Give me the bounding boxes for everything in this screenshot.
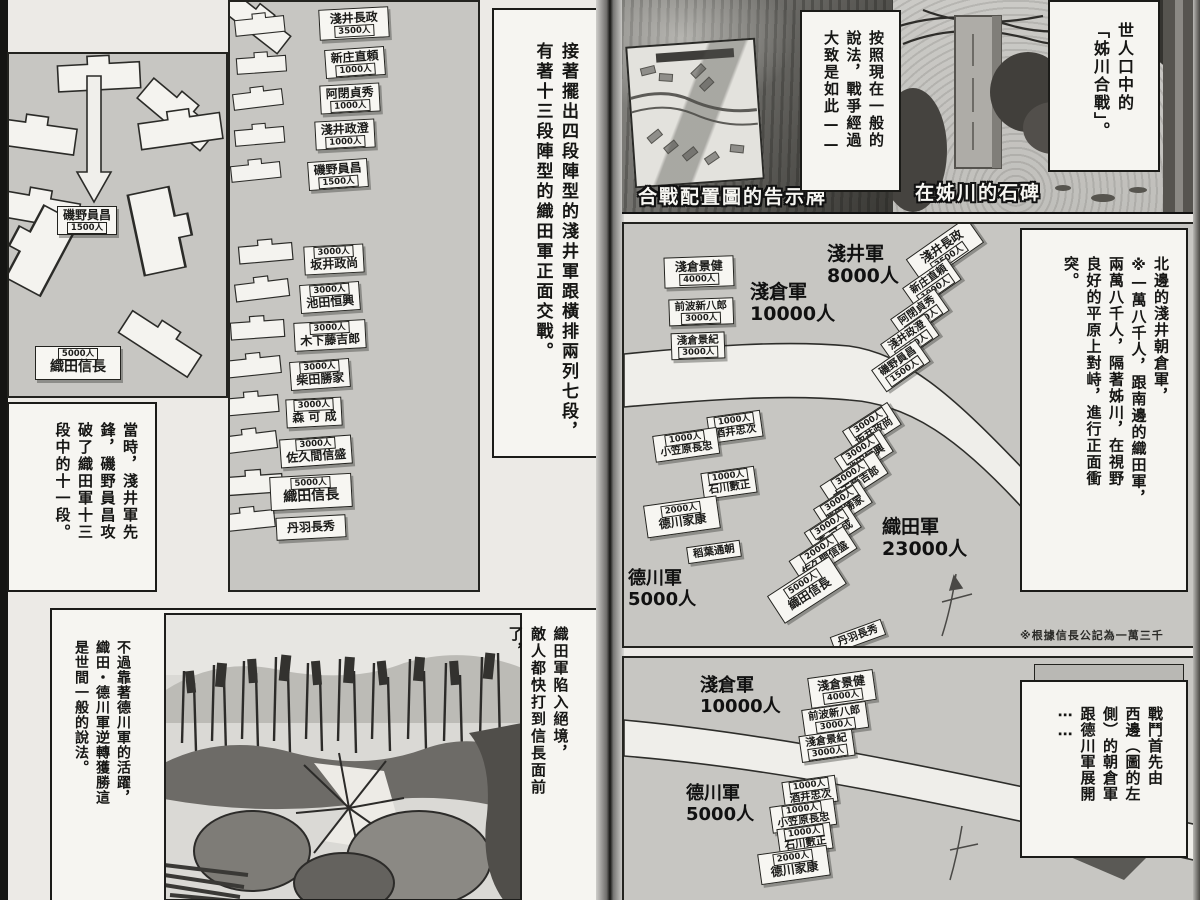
unit-label: 淺井長政 3500人 xyxy=(318,6,390,41)
army-name: 德川軍 xyxy=(686,784,754,805)
unit-name: 織田信長 xyxy=(283,487,340,507)
unit-label: 磯野員昌 1500人 xyxy=(307,158,369,191)
narration-line: 破了織田軍十三 xyxy=(74,422,97,582)
narration-line: 敵人都快打到信長面前 xyxy=(527,626,550,866)
army-text-tokugawa: 德川軍 5000人 xyxy=(628,569,696,610)
unit-name: 織田信長 xyxy=(50,359,106,377)
army-name: 淺倉軍 xyxy=(700,676,781,697)
page-right-edge xyxy=(1193,0,1200,900)
unit-count: 1000人 xyxy=(330,99,371,113)
speech-line: 說法，戰爭經過 xyxy=(842,30,865,180)
narration-line: 側）的朝倉軍 xyxy=(1099,706,1122,846)
photo-caption: 在姊川的石碑 xyxy=(915,178,1041,205)
speech-line: 按照現在一般的 xyxy=(865,30,888,180)
unit-label: 丹羽長秀 xyxy=(275,514,346,541)
narration-line: 織田・德川軍逆轉獲勝這 xyxy=(91,640,112,860)
unit-name: 坂井政尚 xyxy=(310,256,359,273)
unit-count: 1000人 xyxy=(325,135,366,149)
army-name: 淺倉軍 xyxy=(750,282,835,304)
speech-line: 大致是如此—— xyxy=(820,30,843,180)
north-arrow-sketch xyxy=(942,574,972,636)
narration-line: 鋒，磯野員昌攻 xyxy=(96,422,119,582)
unit-count: 1000人 xyxy=(335,63,376,78)
army-name: 織田軍 xyxy=(882,517,967,539)
army-name: 淺井軍 xyxy=(827,244,899,266)
narration-line: 當時，淺井軍先 xyxy=(119,422,142,582)
unit-label: 磯野員昌 1500人 xyxy=(57,206,117,235)
unit-label: 森 可 成 3000人 xyxy=(285,397,343,429)
narration-line: 接著擺出四段陣型的淺井軍跟橫排兩列七段， xyxy=(555,42,581,442)
narration-line: 織田軍陷入絕境， xyxy=(549,626,572,866)
army-count: 5000人 xyxy=(628,590,696,611)
speech-box-title: 世人口中的 「姊川合戰」。 xyxy=(1048,0,1160,172)
unit-name: 池田恒興 xyxy=(306,294,355,312)
unit-label: 池田恒興 3000人 xyxy=(299,281,361,314)
narration-line: ※一萬八千人，跟南邊的織田軍， xyxy=(1127,256,1150,576)
army-text-asakura: 淺倉軍 10000人 xyxy=(750,282,835,326)
unit-name: 丹羽長秀 xyxy=(287,519,336,536)
army-text-tokugawa: 德川軍 5000人 xyxy=(686,784,754,825)
narration-line: ⋯⋯ xyxy=(1054,706,1077,846)
narration-panel-map: 北邊的淺井朝倉軍， ※一萬八千人，跟南邊的織田軍， 兩萬八千人，隔著姊川，在視野… xyxy=(1020,228,1188,592)
diagram-panel: 磯野員昌 1500人 織田信長 5000人 xyxy=(7,52,228,398)
unit-label: 柴田勝家 3000人 xyxy=(289,358,351,391)
unit-name: 佐久間信盛 xyxy=(286,447,347,466)
unit-label: 坂井政尚 3000人 xyxy=(303,243,364,275)
army-count: 10000人 xyxy=(750,304,835,326)
unit-label: 淺倉景健 4000人 xyxy=(663,255,734,289)
unit-label: 淺井政澄 1000人 xyxy=(314,118,375,150)
narration-line: 突。 xyxy=(1060,256,1083,576)
unit-label: 織田信長 5000人 xyxy=(269,473,353,511)
unit-label: 佐久間信盛 3000人 xyxy=(279,435,353,469)
narration-line: 不過靠著德川軍的活躍， xyxy=(112,640,133,860)
unit-name: 柴田勝家 xyxy=(296,371,345,389)
army-count: 8000人 xyxy=(827,266,899,288)
army-text-asakura: 淺倉軍 10000人 xyxy=(700,676,781,717)
unit-name: 木下藤吉郎 xyxy=(300,332,361,350)
narration-line: 西邊（圖的左 xyxy=(1121,706,1144,846)
unit-count: 3000人 xyxy=(681,312,722,326)
narration-panel-battle-start: 戰鬥首先由 西邊（圖的左 側）的朝倉軍 跟德川軍展開 ⋯⋯ xyxy=(1020,680,1188,858)
army-count: 5000人 xyxy=(686,805,754,826)
army-count: 23000人 xyxy=(882,539,967,561)
narration-panel-top: 接著擺出四段陣型的淺井軍跟橫排兩列七段， 有著十三段陣型的織田軍正面交戰。 xyxy=(492,8,598,458)
speech-line: 世人口中的 xyxy=(1112,22,1136,162)
attack-arrow xyxy=(77,76,111,202)
narration-line: 兩萬八千人，隔著姊川，在視野 xyxy=(1105,256,1128,576)
narration-line: 段中的十一段。 xyxy=(51,422,74,582)
narration-line: 跟德川軍展開 xyxy=(1076,706,1099,846)
army-text-asai: 淺井軍 8000人 xyxy=(827,244,899,288)
unit-count: 3500人 xyxy=(334,24,375,38)
unit-label: 木下藤吉郎 3000人 xyxy=(293,319,366,352)
north-arrow-sketch xyxy=(950,826,978,880)
sign-board xyxy=(625,38,765,189)
unit-label: 新庄直頼 1000人 xyxy=(324,46,386,79)
manga-spread: 磯野員昌 1500人 織田信長 5000人 當時，淺井軍先 鋒，磯野員昌攻 破了… xyxy=(0,0,1200,900)
battle-panel: 不過靠著德川軍的活躍， 織田・德川軍逆轉獲勝這 是世間一般的說法。 xyxy=(50,608,598,900)
narration-line: 北邊的淺井朝倉軍， xyxy=(1150,256,1173,576)
unit-label: 織田信長 5000人 xyxy=(35,346,121,380)
formation-panel: 淺井長政 3500人 新庄直頼 1000人 阿閉貞秀 1000人 淺井政澄 10… xyxy=(228,0,480,592)
unit-label: 前波新八郎 3000人 xyxy=(668,297,733,327)
unit-count: 1500人 xyxy=(318,175,359,190)
narration-panel-left: 當時，淺井軍先 鋒，磯野員昌攻 破了織田軍十三 段中的十一段。 xyxy=(7,402,157,592)
speech-box-method: 按照現在一般的 說法，戰爭經過 大致是如此—— xyxy=(800,10,901,192)
narration-line: 了， xyxy=(504,626,527,866)
page-gutter xyxy=(596,0,624,900)
narration-line: 戰鬥首先由 xyxy=(1144,706,1167,846)
photo-caption: 合戰配置圖的告示牌 xyxy=(638,182,827,209)
battle-illustration xyxy=(164,613,522,900)
footnote: ※根據信長公記為一萬三千 xyxy=(1020,627,1164,643)
unit-name: 森 可 成 xyxy=(292,409,337,426)
narration-line: 有著十三段陣型的織田軍正面交戰。 xyxy=(529,42,555,442)
unit-label: 阿閉貞秀 1000人 xyxy=(319,82,380,114)
army-count: 10000人 xyxy=(700,697,781,718)
narration-line: 良好的平原上對峙，進行正面衝 xyxy=(1082,256,1105,576)
unit-count: 3000人 xyxy=(678,346,719,360)
unit-label: 淺倉景紀 3000人 xyxy=(671,331,726,360)
speech-line: 「姊川合戰」。 xyxy=(1088,22,1112,162)
unit-count: 1500人 xyxy=(67,222,107,234)
army-name: 德川軍 xyxy=(628,569,696,590)
unit-name: 磯野員昌 xyxy=(63,208,111,223)
army-text-oda: 織田軍 23000人 xyxy=(882,517,967,561)
narration-line: 是世間一般的說法。 xyxy=(70,640,91,860)
unit-count: 4000人 xyxy=(679,273,720,287)
